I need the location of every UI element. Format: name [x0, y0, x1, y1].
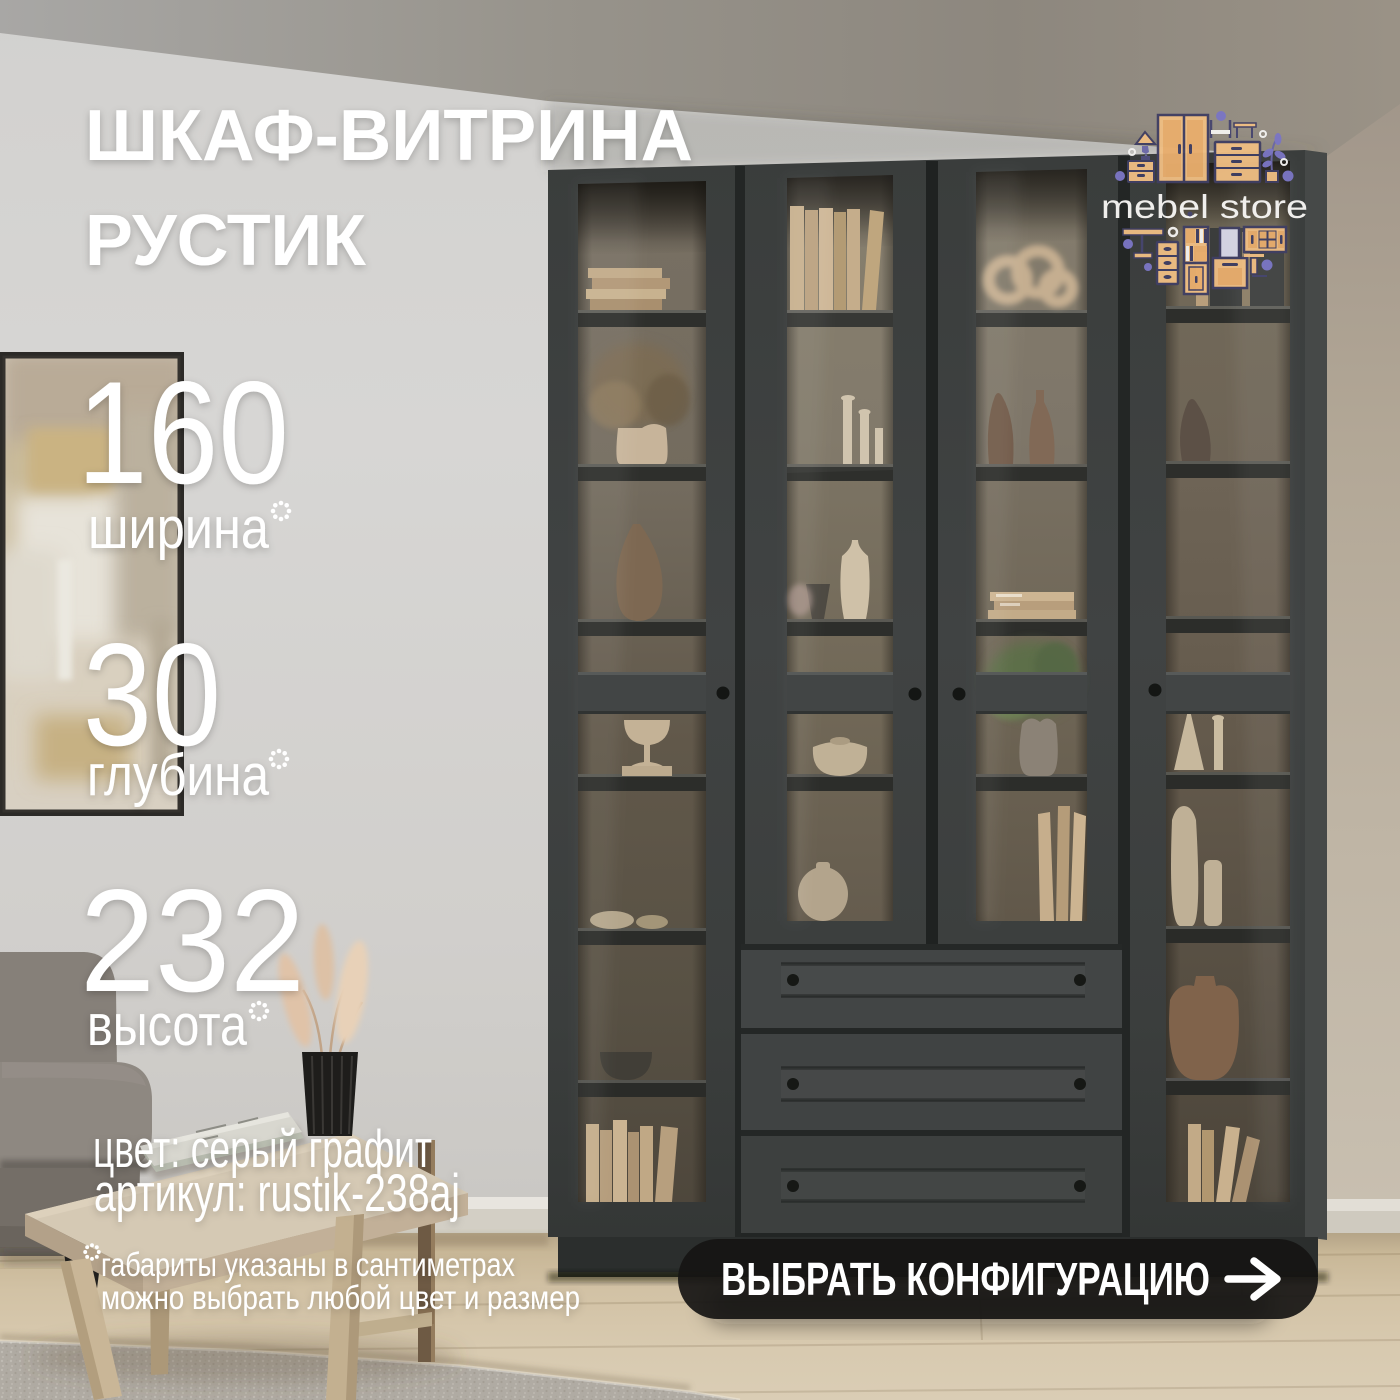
svg-text:ширина: ширина: [88, 496, 270, 561]
svg-text:ШКАФ-ВИТРИНА: ШКАФ-ВИТРИНА: [85, 96, 693, 176]
svg-text:160: 160: [77, 351, 289, 514]
svg-text:РУСТИК: РУСТИК: [85, 201, 367, 281]
svg-text:можно выбрать любой цвет и раз: можно выбрать любой цвет и размер: [101, 1279, 580, 1316]
svg-text:глубина: глубина: [87, 743, 270, 808]
svg-text:высота: высота: [87, 993, 248, 1058]
svg-text:ВЫБРАТЬ КОНФИГУРАЦИЮ: ВЫБРАТЬ КОНФИГУРАЦИЮ: [721, 1253, 1210, 1305]
svg-text:габариты указаны в сантиметрах: габариты указаны в сантиметрах: [101, 1246, 515, 1283]
svg-text:артикул: rustik-238aj: артикул: rustik-238aj: [94, 1164, 460, 1223]
svg-text:mebel store: mebel store: [1101, 188, 1308, 225]
